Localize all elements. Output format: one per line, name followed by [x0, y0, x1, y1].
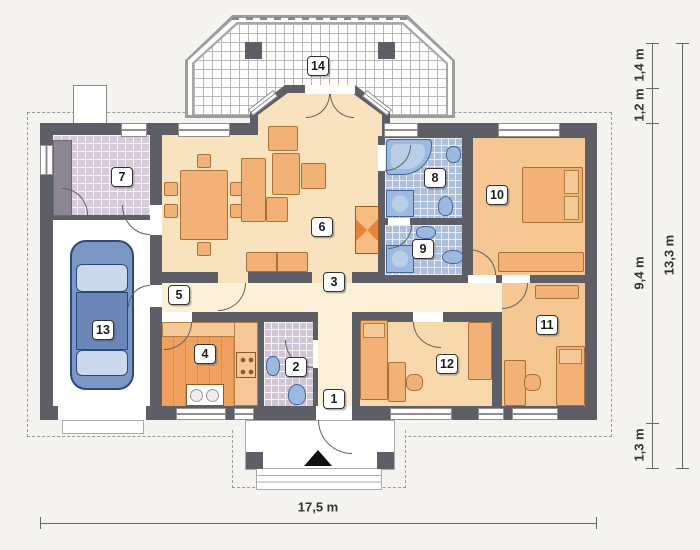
wall-segment	[313, 322, 318, 340]
room-badge-7: 7	[111, 167, 133, 187]
terrace-post	[378, 42, 395, 59]
dim-label-seg-14: 1,4 m	[632, 48, 647, 81]
wardrobe	[498, 252, 584, 272]
chimney	[73, 85, 107, 125]
room-badge-5: 5	[168, 285, 190, 305]
window	[178, 123, 230, 137]
wardrobe	[468, 322, 492, 380]
dim-tick	[676, 43, 689, 44]
wall-segment	[382, 275, 390, 283]
desk	[504, 360, 526, 406]
window	[40, 145, 53, 175]
garage-door-opening	[58, 406, 146, 420]
garage-apron	[62, 420, 144, 434]
terrace-post	[245, 42, 262, 59]
wall-segment	[258, 322, 264, 406]
dining-chair	[164, 204, 178, 218]
dim-tick	[646, 88, 659, 89]
room-badge-10: 10	[486, 185, 508, 205]
door-opening	[378, 145, 385, 171]
room-badge-13: 13	[92, 320, 114, 340]
door-opening	[388, 218, 410, 225]
dim-tick	[646, 43, 659, 44]
wall-segment	[443, 312, 492, 322]
dining-chair	[197, 242, 211, 256]
dim-label-height-total: 13,3 m	[662, 235, 677, 275]
sink-basin	[190, 389, 203, 402]
window	[478, 408, 504, 420]
dim-tick	[40, 517, 41, 529]
pillow	[564, 170, 579, 194]
dim-tick	[676, 468, 689, 469]
room-badge-1: 1	[323, 389, 345, 409]
room-badge-6: 6	[311, 217, 333, 237]
shower	[386, 190, 414, 217]
sink-basin	[206, 389, 219, 402]
room-badge-12: 12	[436, 354, 458, 374]
dim-label-seg-12: 1,2 m	[632, 88, 647, 121]
door-opening	[313, 340, 318, 368]
entrance-arrow-icon	[304, 450, 332, 466]
terrace-edge-dashes	[232, 17, 408, 20]
wall-segment	[258, 312, 318, 322]
car-windshield	[76, 264, 128, 292]
dim-tick	[596, 517, 597, 529]
toilet	[442, 250, 463, 264]
room-badge-14: 14	[307, 56, 329, 76]
window	[390, 408, 452, 420]
pillow	[363, 323, 385, 338]
wardrobe	[388, 362, 406, 402]
dim-line-right-inner	[652, 43, 653, 469]
wall-segment	[313, 368, 318, 406]
pillow	[564, 196, 579, 220]
window	[384, 123, 418, 137]
wall-segment	[352, 322, 360, 406]
pillow	[559, 349, 582, 364]
window	[512, 408, 558, 420]
dining-chair	[197, 154, 211, 168]
kitchen-sink	[186, 384, 224, 406]
dim-line-right-outer	[682, 43, 683, 469]
armchair	[268, 126, 298, 151]
wall-segment	[248, 272, 312, 283]
wall-segment	[352, 272, 378, 283]
dim-tick	[646, 123, 659, 124]
room-badge-11: 11	[536, 315, 558, 335]
car-rear-window	[76, 350, 128, 376]
shower	[386, 245, 414, 273]
wall-segment	[530, 275, 585, 283]
tv-bench-sofa	[246, 252, 308, 272]
wall-segment	[410, 218, 462, 225]
dim-line-width	[40, 523, 597, 524]
toilet	[288, 384, 306, 405]
coffee-table	[272, 153, 300, 195]
wc-sink	[266, 356, 280, 376]
sofa	[241, 158, 266, 222]
washbasin	[446, 146, 461, 163]
door-opening	[305, 85, 355, 94]
stool	[406, 374, 423, 391]
toilet	[438, 196, 453, 216]
room-badge-8: 8	[424, 168, 446, 188]
wall-segment	[162, 272, 218, 283]
stove	[236, 352, 256, 378]
chair	[524, 374, 541, 391]
sofa-corner-seat	[266, 197, 288, 222]
washbasin	[416, 226, 436, 239]
room-badge-2: 2	[285, 357, 307, 377]
dim-tick	[646, 468, 659, 469]
door-opening	[468, 275, 496, 283]
room-badge-4: 4	[194, 344, 216, 364]
fireplace	[355, 206, 379, 254]
window	[234, 408, 254, 420]
dim-label-seg-94: 9,4 m	[632, 256, 647, 289]
door-opening	[502, 275, 530, 283]
door-opening	[413, 312, 443, 322]
porch-steps	[256, 468, 382, 490]
floor-plan: 1 2 3 4 5 6 7 8 9 10 11 12 13 14 17,5 m …	[0, 0, 700, 550]
shelf	[535, 285, 579, 299]
room-badge-3: 3	[323, 272, 345, 292]
door-opening	[150, 285, 162, 307]
wall-segment	[192, 312, 258, 322]
door-opening	[162, 312, 192, 322]
room-badge-9: 9	[412, 239, 434, 259]
window	[121, 123, 147, 137]
window	[176, 408, 226, 420]
porch-pillar	[246, 452, 263, 469]
door-opening	[150, 205, 162, 235]
dim-tick	[646, 423, 659, 424]
wall-segment	[492, 322, 502, 406]
window	[498, 123, 560, 137]
wall-segment	[416, 275, 468, 283]
dining-table	[180, 170, 228, 240]
porch-pillar	[377, 452, 394, 469]
dim-label-width: 17,5 m	[298, 500, 338, 515]
dining-chair	[164, 182, 178, 196]
armchair	[301, 163, 326, 189]
dim-label-seg-13: 1,3 m	[632, 428, 647, 461]
